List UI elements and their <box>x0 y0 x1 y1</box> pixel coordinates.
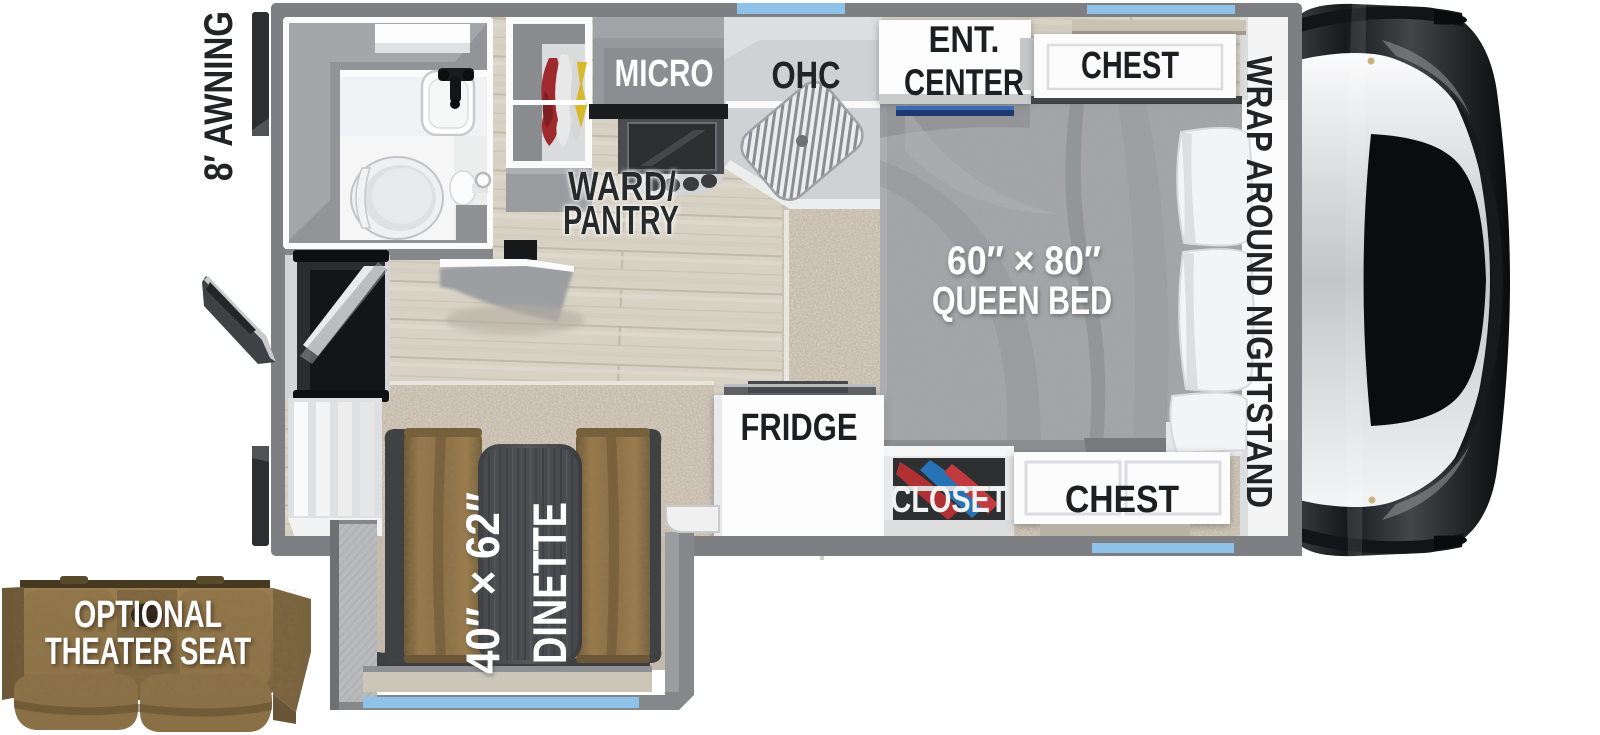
svg-text:OPTIONAL: OPTIONAL <box>74 594 222 636</box>
svg-text:CHEST: CHEST <box>1081 45 1179 87</box>
svg-text:FRIDGE: FRIDGE <box>741 407 858 449</box>
svg-text:DINETTE: DINETTE <box>523 502 576 664</box>
svg-text:8′ AWNING: 8′ AWNING <box>197 11 241 181</box>
svg-text:THEATER SEAT: THEATER SEAT <box>45 631 251 673</box>
svg-text:MICRO: MICRO <box>615 53 714 95</box>
svg-text:CHEST: CHEST <box>1065 479 1179 521</box>
svg-text:ENT.: ENT. <box>929 19 1000 60</box>
svg-text:OHC: OHC <box>772 55 841 97</box>
svg-text:CLOSET: CLOSET <box>891 479 1008 520</box>
svg-text:WRAP AROUND NIGHTSTAND: WRAP AROUND NIGHTSTAND <box>1239 56 1280 508</box>
svg-text:60″ × 80″: 60″ × 80″ <box>947 239 1101 283</box>
svg-text:PANTRY: PANTRY <box>563 197 679 243</box>
svg-text:QUEEN BED: QUEEN BED <box>932 279 1112 323</box>
svg-text:40″ × 62″: 40″ × 62″ <box>456 492 509 674</box>
svg-text:CENTER: CENTER <box>904 62 1024 103</box>
